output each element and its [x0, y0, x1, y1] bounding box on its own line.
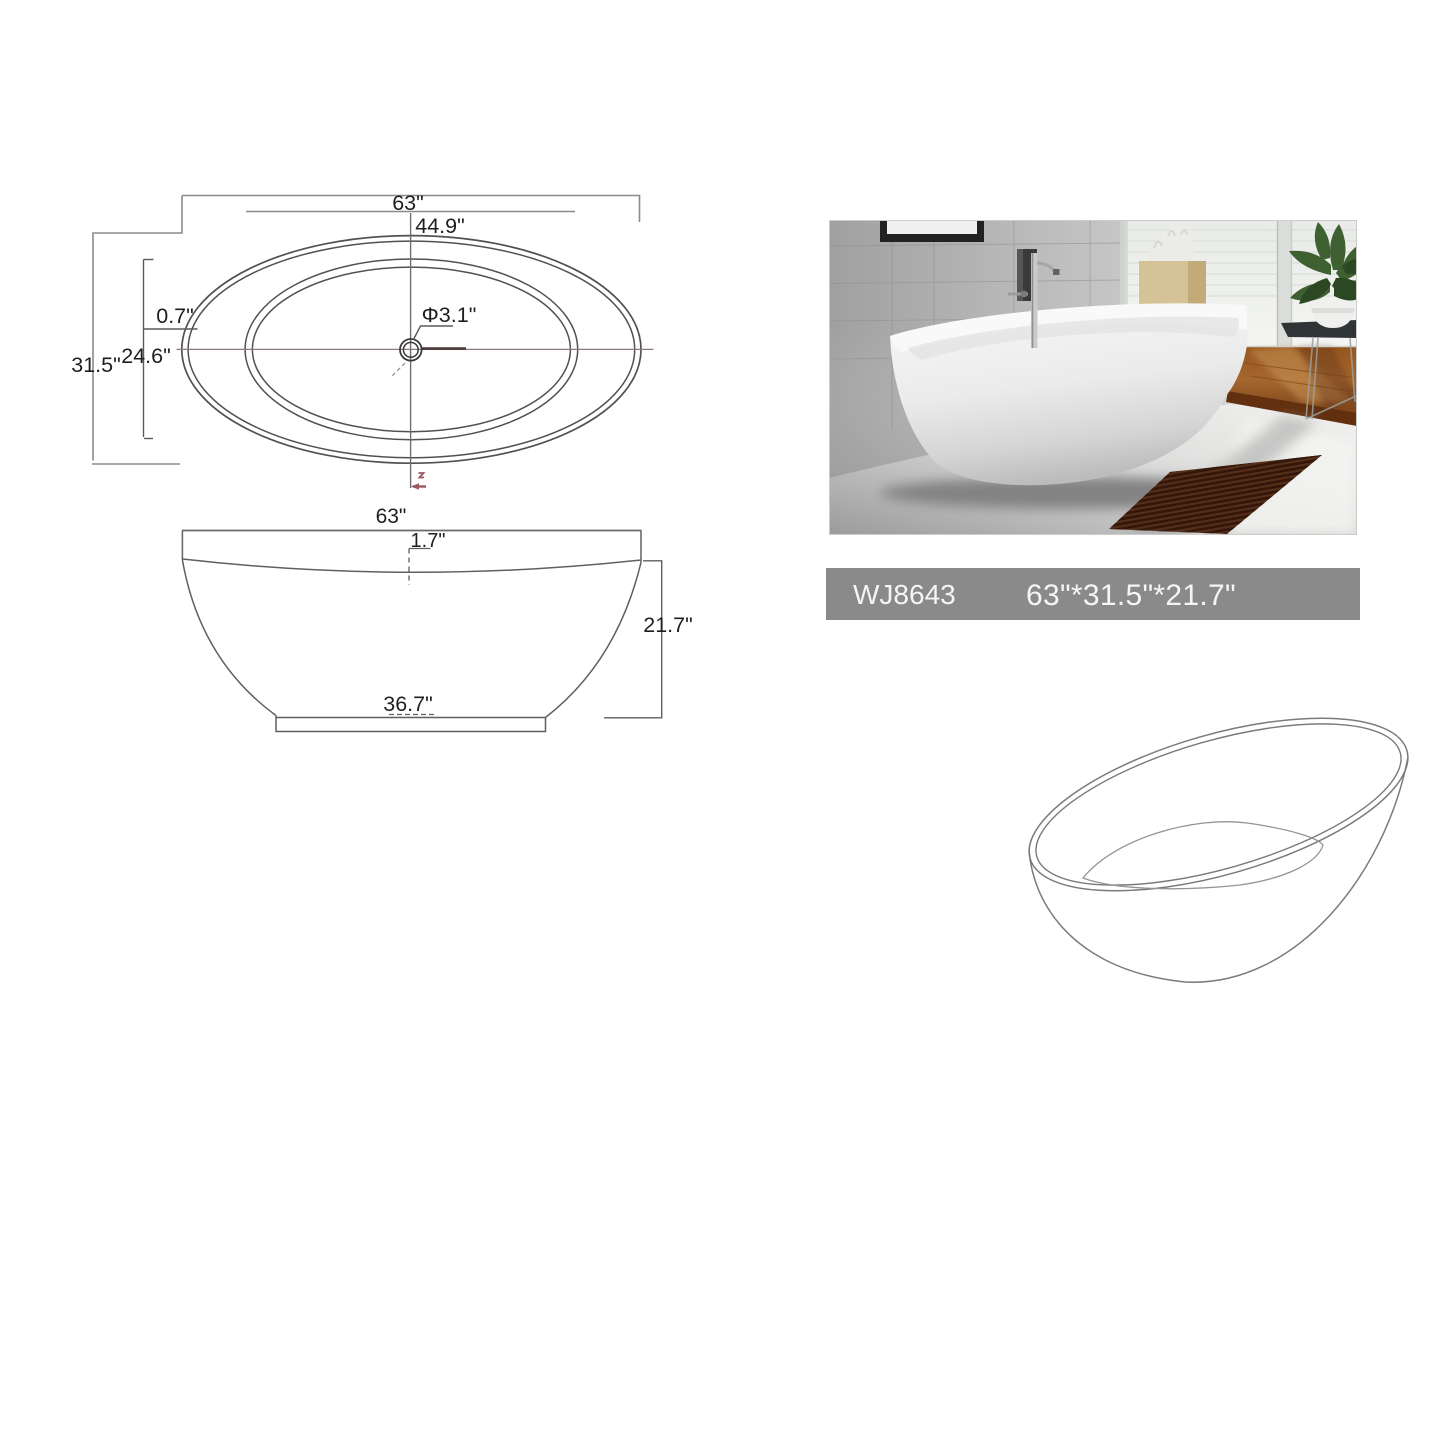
svg-text:63": 63" — [392, 191, 424, 215]
svg-text:21.7": 21.7" — [643, 613, 692, 637]
svg-text:63"*31.5"*21.7": 63"*31.5"*21.7" — [1026, 579, 1236, 612]
svg-text:44.9": 44.9" — [415, 214, 464, 238]
svg-text:WJ8643: WJ8643 — [853, 579, 956, 610]
svg-text:31.5": 31.5" — [71, 353, 120, 377]
svg-text:36.7": 36.7" — [383, 692, 432, 716]
svg-text:24.6": 24.6" — [121, 344, 170, 368]
svg-text:Φ3.1": Φ3.1" — [422, 303, 477, 327]
svg-text:63": 63" — [376, 505, 407, 528]
svg-text:0.7": 0.7" — [156, 304, 194, 328]
